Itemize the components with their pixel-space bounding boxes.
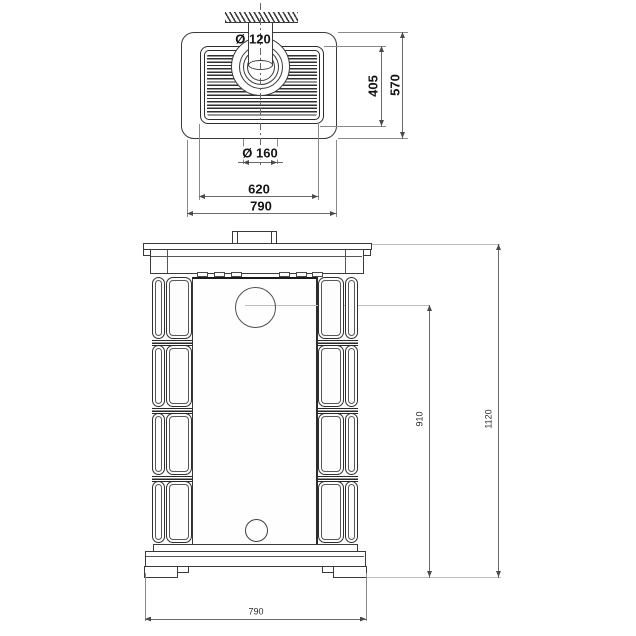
ext-line: [366, 573, 367, 621]
base-plinth: [145, 551, 366, 567]
tile: [345, 413, 358, 475]
ext-line: [199, 124, 200, 200]
centerline: [260, 3, 261, 165]
ref-line-bottom: [367, 577, 501, 578]
tile: [166, 345, 192, 407]
arrow-icon: [496, 244, 501, 250]
ext-line: [336, 140, 337, 217]
ext-line: [145, 573, 146, 621]
ext-line: [324, 46, 386, 47]
tile: [152, 481, 165, 543]
flue-cap-line: [271, 232, 272, 243]
tile: [166, 413, 192, 475]
tile-groove: [317, 476, 358, 482]
tile: [318, 277, 344, 339]
tile-groove: [152, 408, 193, 414]
dim-line-total-height: [498, 244, 499, 578]
dim-label-pipe-diameter: Ø 120: [234, 33, 271, 46]
dim-label-flue-height: 910: [416, 410, 425, 427]
dim-label-top-width: 790: [249, 199, 273, 212]
tile-groove: [317, 340, 358, 346]
ext-line: [318, 124, 319, 200]
ext-line: [338, 32, 408, 33]
tile-groove: [152, 340, 193, 346]
dim-label-total-height: 1120: [485, 408, 494, 429]
flue-outlet-circle: [235, 287, 276, 328]
ref-line-top: [372, 244, 500, 245]
tile: [345, 345, 358, 407]
dim-label-collar-diameter: Ø 160: [241, 147, 278, 160]
wall-hatch: [225, 12, 298, 23]
air-control-knob: [245, 519, 268, 542]
tile-groove: [317, 408, 358, 414]
tile: [166, 481, 192, 543]
foot-right: [333, 566, 367, 578]
base-plinth-line: [146, 556, 364, 557]
tile: [345, 277, 358, 339]
tile: [166, 277, 192, 339]
crown-molding: [150, 249, 364, 274]
dim-label-base-width: 790: [247, 608, 264, 617]
tile: [152, 277, 165, 339]
foot-left: [144, 566, 178, 578]
dim-label-grille-width: 620: [247, 182, 271, 195]
tile: [152, 413, 165, 475]
foot-tab-left: [177, 566, 189, 573]
dim-line-grille-depth: [381, 46, 382, 127]
tile: [318, 413, 344, 475]
flue-cap-line: [237, 232, 238, 243]
crown-molding-line: [345, 250, 346, 273]
tile: [345, 481, 358, 543]
dim-line-grille-width: [199, 196, 319, 197]
ext-line: [338, 138, 408, 139]
crown-molding-line: [167, 250, 168, 273]
dim-line-flue-height: [429, 305, 430, 578]
ext-line: [320, 126, 386, 127]
tile: [152, 345, 165, 407]
foot-tab-right: [322, 566, 334, 573]
tile-groove: [152, 476, 193, 482]
dim-line-base-width: [145, 619, 367, 620]
tile: [318, 481, 344, 543]
stove-technical-drawing: Ø 120 Ø 160 620 790 405 570: [0, 0, 636, 636]
dim-label-grille-depth: 405: [367, 74, 380, 98]
ext-line: [187, 140, 188, 217]
crown-molding-line: [151, 256, 362, 257]
dim-line-top-width: [187, 213, 337, 214]
dim-label-top-depth: 570: [388, 73, 401, 97]
tile: [318, 345, 344, 407]
